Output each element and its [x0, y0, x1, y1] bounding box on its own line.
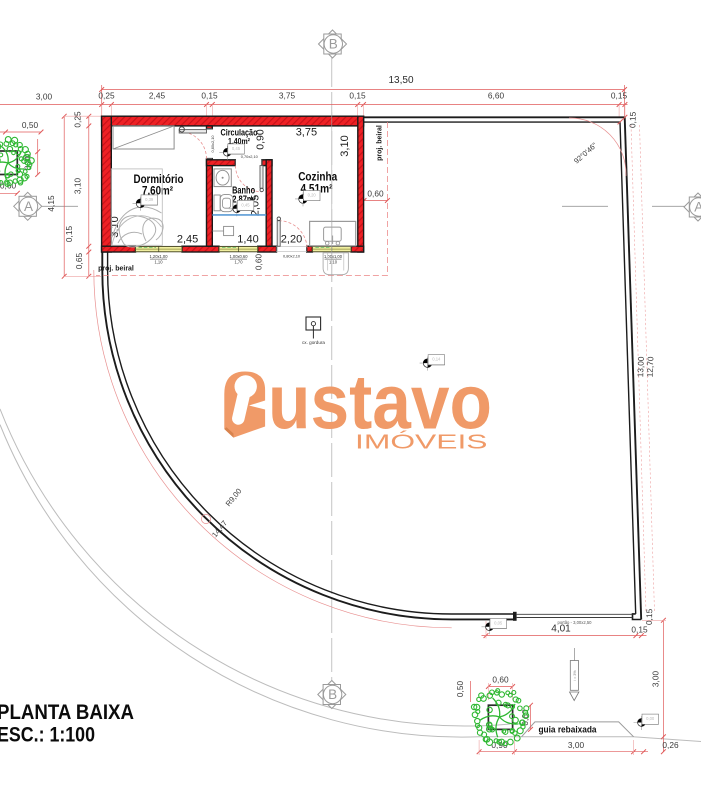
svg-text:0,15: 0,15 [201, 91, 218, 101]
svg-text:0,90: 0,90 [255, 129, 267, 150]
svg-text:0,80x2,10: 0,80x2,10 [210, 135, 215, 153]
svg-text:4,01: 4,01 [551, 623, 571, 634]
svg-text:13,50: 13,50 [388, 75, 413, 86]
svg-text:B: B [328, 687, 337, 702]
svg-text:0,45: 0,45 [241, 202, 250, 207]
svg-text:0,65: 0,65 [74, 253, 84, 270]
svg-text:0,45: 0,45 [232, 146, 241, 151]
svg-text:3,75: 3,75 [296, 127, 317, 139]
svg-text:2,45: 2,45 [177, 234, 198, 246]
svg-text:0,15: 0,15 [627, 111, 638, 128]
svg-text:IMÓVEIS: IMÓVEIS [355, 430, 488, 453]
svg-text:1,10: 1,10 [329, 259, 338, 264]
svg-text:1,00x1,00: 1,00x1,00 [324, 254, 343, 259]
svg-text:0,15: 0,15 [644, 608, 655, 625]
svg-text:3,10: 3,10 [339, 135, 351, 156]
svg-text:0,60: 0,60 [254, 254, 264, 271]
svg-text:0,70x2,10: 0,70x2,10 [241, 154, 259, 159]
svg-text:0,15: 0,15 [611, 91, 628, 101]
svg-text:0,80x2,10: 0,80x2,10 [283, 253, 301, 258]
svg-text:1,40: 1,40 [237, 234, 258, 246]
svg-text:i = 3%: i = 3% [573, 670, 577, 681]
svg-text:3,00: 3,00 [651, 671, 661, 688]
svg-text:0,25: 0,25 [73, 111, 83, 128]
svg-text:4,15: 4,15 [46, 195, 56, 212]
svg-text:1,00x0,60: 1,00x0,60 [230, 254, 249, 259]
svg-text:3,00: 3,00 [36, 92, 53, 102]
svg-text:ESC.: 1:100: ESC.: 1:100 [0, 723, 95, 747]
svg-text:0,60: 0,60 [367, 189, 384, 199]
svg-text:guia rebaixada: guia rebaixada [539, 725, 598, 736]
svg-text:3,75: 3,75 [279, 91, 296, 101]
svg-text:0,00: 0,00 [646, 716, 655, 721]
svg-text:proj. beiral: proj. beiral [377, 125, 384, 161]
svg-text:proj. beiral: proj. beiral [98, 266, 134, 273]
svg-text:A: A [24, 199, 33, 214]
svg-text:6,60: 6,60 [488, 91, 505, 101]
svg-text:3,10: 3,10 [73, 178, 83, 195]
svg-text:3,00: 3,00 [568, 740, 585, 750]
svg-text:1,70: 1,70 [235, 259, 244, 264]
svg-text:cx. gordura: cx. gordura [302, 340, 325, 345]
svg-text:Circulação: Circulação [221, 128, 258, 138]
svg-text:0,15: 0,15 [64, 226, 74, 243]
svg-text:2,45: 2,45 [149, 91, 166, 101]
svg-text:0,60: 0,60 [492, 675, 509, 685]
svg-text:12,70: 12,70 [645, 356, 656, 377]
svg-text:PLANTA BAIXA: PLANTA BAIXA [0, 700, 134, 724]
svg-text:0,20: 0,20 [308, 193, 317, 198]
svg-text:1,20x1,00: 1,20x1,00 [150, 254, 169, 259]
svg-text:B: B [329, 37, 338, 52]
svg-text:0,15: 0,15 [349, 91, 366, 101]
svg-text:0,25: 0,25 [98, 91, 115, 101]
svg-text:0,39: 0,39 [145, 197, 154, 202]
svg-text:A: A [694, 200, 701, 215]
svg-text:0,50: 0,50 [22, 120, 39, 130]
svg-text:0,50: 0,50 [455, 681, 465, 698]
svg-text:1,10: 1,10 [155, 259, 164, 264]
svg-text:0,26: 0,26 [662, 740, 679, 750]
svg-text:portão - 3,00x2,50: portão - 3,00x2,50 [558, 620, 593, 625]
svg-text:2,20: 2,20 [281, 234, 302, 246]
svg-text:0,05: 0,05 [494, 620, 503, 625]
